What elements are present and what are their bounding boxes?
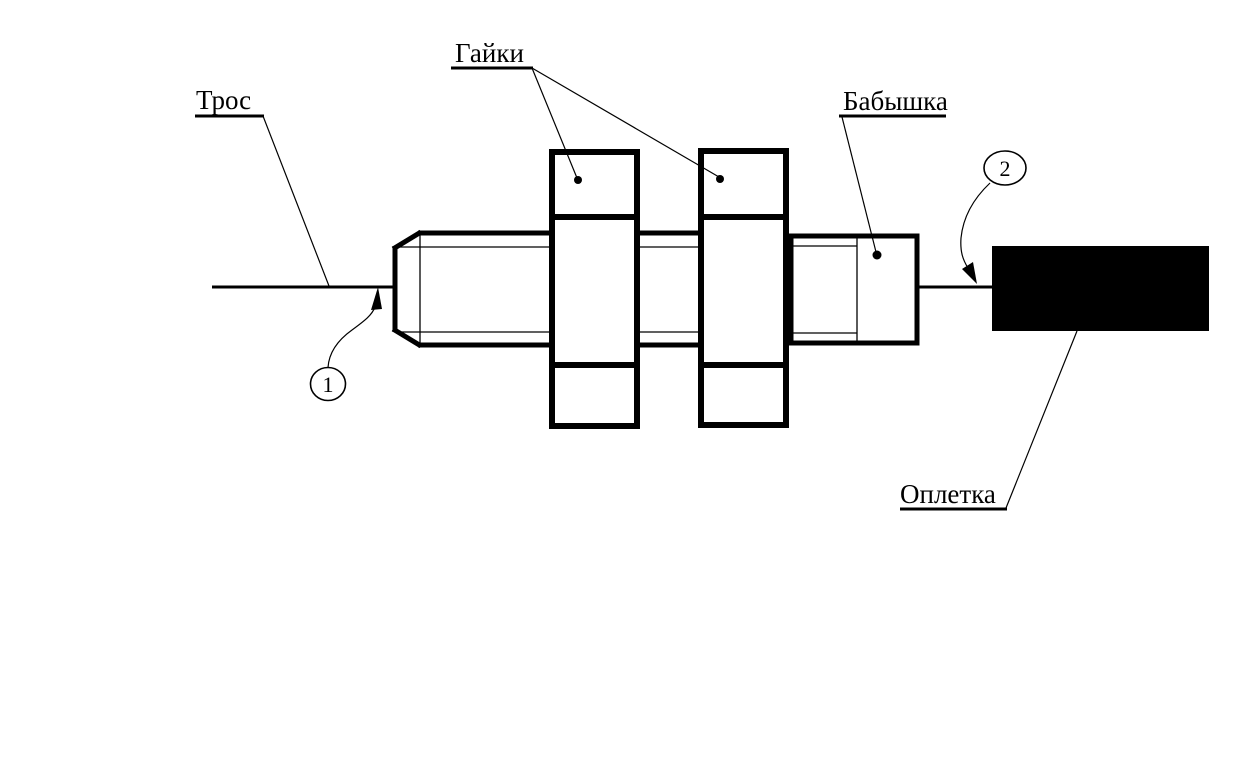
label-nuts-dot-1	[574, 176, 582, 184]
callout-1-group: 1	[311, 287, 383, 401]
braid-block	[992, 246, 1209, 331]
label-boss: Бабышка	[843, 86, 948, 116]
callout-1-number: 1	[323, 372, 334, 397]
label-boss-leader	[842, 117, 876, 252]
label-boss-dot	[873, 251, 882, 260]
label-nuts-group: Гайки	[451, 38, 724, 184]
nut-2	[698, 151, 789, 425]
callout-1-leader	[328, 307, 375, 368]
nut-1	[549, 152, 640, 426]
label-nuts-leader-2	[532, 68, 719, 177]
label-cable-group: Трос	[195, 85, 329, 286]
nut-1-outline	[552, 152, 637, 426]
label-braid-leader	[1006, 331, 1077, 508]
callout-2-number: 2	[1000, 156, 1011, 181]
bolt-body	[393, 231, 552, 347]
shaft-between-nuts	[637, 233, 701, 345]
label-braid-group: Оплетка	[900, 331, 1077, 509]
label-nuts: Гайки	[455, 38, 524, 68]
nut-2-outline	[701, 151, 786, 425]
callout-2-arrowhead	[962, 262, 977, 284]
callout-1-arrowhead	[371, 287, 382, 310]
callout-2-leader	[961, 183, 990, 268]
label-cable: Трос	[196, 85, 251, 115]
diagram-canvas: Трос Гайки Бабышка Оплетка	[0, 0, 1250, 783]
assembly-drawing: Трос Гайки Бабышка Оплетка	[0, 0, 1250, 783]
boss-body	[791, 236, 917, 343]
label-boss-group: Бабышка	[839, 86, 948, 260]
label-nuts-dot-2	[716, 175, 724, 183]
boss-outline	[791, 236, 917, 343]
label-cable-leader	[263, 116, 329, 286]
label-braid: Оплетка	[900, 479, 996, 509]
